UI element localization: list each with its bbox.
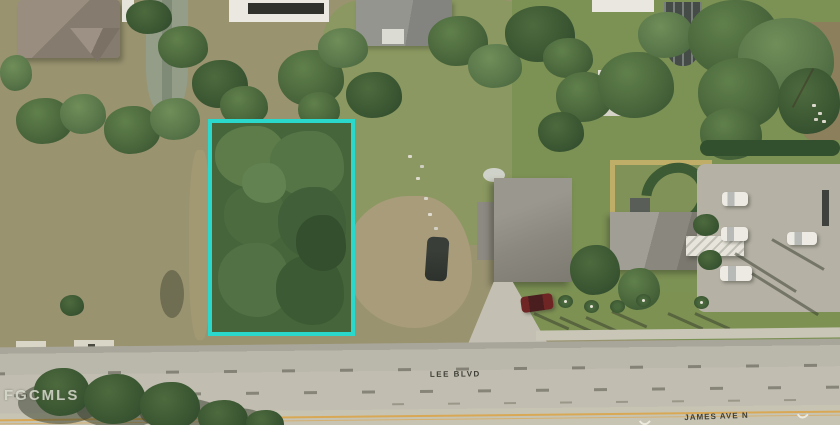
palm-canopy (693, 214, 719, 236)
parked-car-white (721, 227, 748, 241)
lane-dash-row (0, 364, 840, 376)
parked-car-white (720, 266, 752, 281)
pool-house-roof (592, 0, 654, 12)
debris-cluster (408, 155, 412, 158)
turn-arrow (477, 420, 489, 425)
watermark: FGCMLS (4, 387, 79, 404)
dirt-patch-center (346, 196, 472, 328)
roof-solar-panel (248, 3, 324, 14)
debris-cluster (812, 104, 816, 107)
aerial-map: LEE BLVD JAMES AVE N FGCMLS (0, 0, 840, 425)
parcel-tree-texture (296, 215, 346, 271)
parked-dark-van (424, 236, 449, 281)
palm-cluster-road (570, 245, 620, 295)
tree-canopy (598, 52, 674, 118)
palm-trunk (700, 301, 703, 304)
parked-car-white (787, 232, 817, 245)
tree-canopy (158, 26, 208, 68)
palm-trunk (590, 305, 593, 308)
tree-canopy (638, 12, 694, 58)
palm-tree (610, 300, 625, 313)
signpost (822, 190, 829, 226)
hedge-line (700, 140, 840, 156)
tree-canopy (60, 94, 106, 134)
road-label-james-ave-n: JAMES AVE N (684, 411, 749, 422)
parcel-outline (208, 119, 355, 336)
tree-shadow (160, 270, 184, 318)
house-mid-roof (494, 178, 572, 282)
palm-trunk (642, 299, 645, 302)
tree-canopy (318, 28, 368, 68)
palm-trunk (564, 300, 567, 303)
tree-canopy-overhang (140, 382, 200, 425)
lane-dash-row (392, 399, 832, 406)
bush-small (60, 295, 84, 316)
road-label-lee-blvd: LEE BLVD (430, 369, 481, 379)
parked-car-white (722, 192, 748, 206)
tree-canopy (538, 112, 584, 152)
tree-canopy-overhang (84, 374, 146, 424)
tree-canopy (150, 98, 200, 140)
parcel-tree-texture (242, 163, 286, 203)
tree-canopy (126, 0, 172, 34)
tree-canopy (0, 55, 32, 91)
patio-white-pad (382, 29, 404, 44)
tree-canopy (346, 72, 402, 118)
palm-canopy (698, 250, 722, 270)
